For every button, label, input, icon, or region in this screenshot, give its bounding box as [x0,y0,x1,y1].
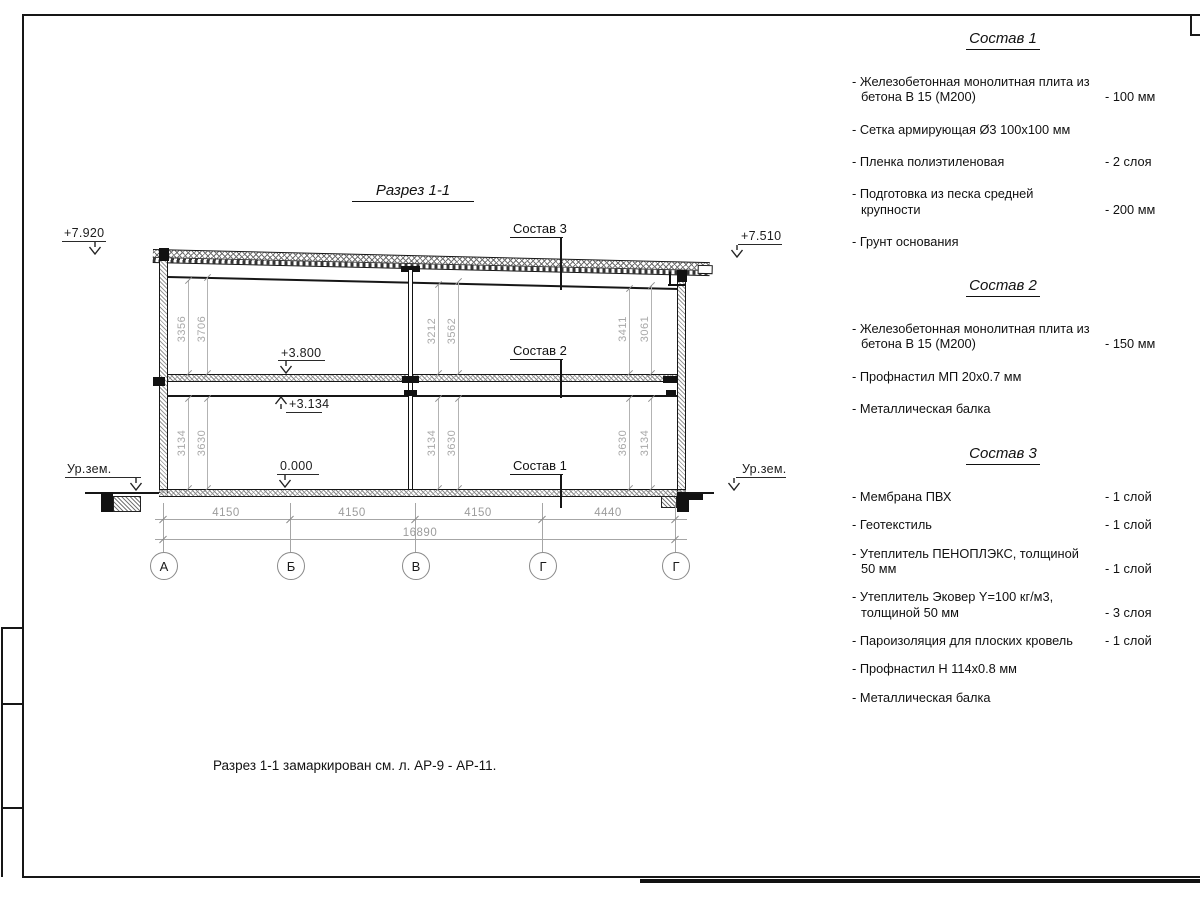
panel-item: - Железобетонная монолитная плита из бет… [852,321,1154,352]
item-value: - 1 слой [1105,517,1152,532]
item-label: - Мембрана ПВХ [852,489,1093,504]
floor-beam-right-support [666,390,676,396]
floor-slab [168,374,677,382]
panel-item: - Подготовка из песка средней крупности … [852,186,1154,217]
dim-line [629,398,630,489]
panel-item: - Железобетонная монолитная плита из бет… [852,74,1154,105]
dim-value: 4440 [578,507,638,519]
item-label: - Подготовка из песка средней крупности [852,186,1093,217]
dim-line [458,281,459,374]
panel-item: - Металлическая балка [852,401,1154,416]
item-value: - 200 мм [1105,202,1155,217]
leader-label-sostav3: Состав 3 [513,221,567,236]
elevation-arrow-icon [129,478,143,491]
dim-line [438,398,439,489]
right-foundation-stub [689,494,703,500]
panel-heading: Состав 1 [852,30,1154,47]
elevation-floor: +3.800 [281,346,321,360]
dim-value: 3411 [617,307,629,351]
roof-bracket-horizontal [668,284,686,286]
axis-bubble-g1: Г [529,552,557,580]
item-label: - Профнастил МП 20x0.7 мм [852,369,1093,384]
left-foundation-block [101,492,113,512]
dimension-line [155,539,687,540]
item-value: - 150 мм [1105,336,1155,351]
elevation-zero: 0.000 [280,459,313,473]
item-value: - 2 слоя [1105,154,1152,169]
item-label: - Металлическая балка [852,690,1093,705]
composition-panel-3: Состав 3 - Мембрана ПВХ - 1 слой - Геоте… [852,445,1154,718]
axis-extension-line [542,503,543,552]
axis-bubble-v: В [402,552,430,580]
leader-label-sostav2: Состав 2 [513,343,567,358]
elevation-arrow-up-icon [274,396,288,409]
elevation-roof-right: +7.510 [741,229,781,243]
left-wall [159,250,168,493]
leader-line [560,238,562,290]
ground-level-label-right: Ур.зем. [742,462,787,476]
frame-left-line [22,14,24,878]
elevation-arrow-icon [278,475,292,488]
item-value: - 1 слой [1105,489,1152,504]
item-value: - 1 слой [1105,633,1152,648]
leader-line [510,237,563,238]
title-block-top-bar [640,879,1200,883]
dim-value: 4150 [196,507,256,519]
ground-line-left [85,492,159,494]
leader-line [510,359,563,360]
column-floor-joint [404,390,417,396]
dim-line [629,288,630,374]
item-value: - 3 слоя [1105,605,1152,620]
ground-level-label-left: Ур.зем. [67,462,112,476]
dim-value: 3061 [639,307,651,351]
axis-extension-line [675,503,676,552]
leader-line [510,474,563,475]
axis-bubble-a: А [150,552,178,580]
dim-value: 3356 [176,307,188,351]
right-wall [677,272,686,493]
margin-box-line [1,627,3,877]
floor-beam-left-support [153,377,165,386]
frame-bottom-line [22,876,1200,878]
axis-extension-line [290,503,291,552]
panel-item: - Утеплитель ПЕНОПЛЭКС, толщиной 50 мм -… [852,546,1154,577]
dim-value: 3134 [639,421,651,465]
dim-value: 3630 [196,421,208,465]
right-foundation-block [677,492,689,512]
panel-item: - Утеплитель Эковер Y=100 кг/м3, толщино… [852,589,1154,620]
right-wall-cap [677,270,687,282]
panel-heading: Состав 2 [852,277,1154,294]
elevation-underline [736,477,786,478]
axis-extension-line [163,503,164,552]
item-label: - Утеплитель Эковер Y=100 кг/м3, толщино… [852,589,1093,620]
panel-item: - Пароизоляция для плоских кровель - 1 с… [852,633,1154,648]
axis-bubble-b: Б [277,552,305,580]
dim-value: 3706 [196,307,208,351]
panel-item: - Пленка полиэтиленовая - 2 слоя [852,154,1154,169]
roof-slab [153,249,710,276]
item-label: - Грунт основания [852,234,1093,249]
item-label: - Железобетонная монолитная плита из бет… [852,321,1093,352]
dim-value: 3134 [176,421,188,465]
floor-beam-line [168,395,677,397]
section-title: Разрез 1-1 [352,182,474,202]
dim-line [651,285,652,374]
elevation-arrow-icon [88,242,102,255]
drawing-sheet: Разрез 1-1 Состав 3 Состав 2 Состав 1 +7… [0,0,1200,900]
leader-line [560,475,562,508]
elevation-underline [738,244,782,245]
composition-panel-2: Состав 2 - Железобетонная монолитная пли… [852,277,1154,433]
dim-value: 4150 [322,507,382,519]
composition-panel-1: Состав 1 - Железобетонная монолитная пли… [852,30,1154,266]
frame-top-line [22,14,1200,16]
panel-item: - Профнастил Н 114x0.8 мм [852,661,1154,676]
dimension-line [155,519,687,520]
leader-label-sostav1: Состав 1 [513,458,567,473]
dim-line [188,398,189,489]
margin-box-line [1,627,22,629]
elevation-roof-left: +7.920 [64,226,104,240]
item-value: - 1 слой [1105,561,1152,576]
elevation-arrow-icon [727,478,741,491]
panel-item: - Сетка армирующая Ø3 100x100 мм [852,122,1154,137]
elevation-underline [286,412,322,413]
frame-corner-box [1190,16,1200,36]
dim-line [458,398,459,489]
elevation-arrow-icon [279,361,293,374]
panel-item: - Профнастил МП 20x0.7 мм [852,369,1154,384]
panel-item: - Металлическая балка [852,690,1154,705]
item-label: - Утеплитель ПЕНОПЛЭКС, толщиной 50 мм [852,546,1093,577]
item-label: - Пароизоляция для плоских кровель [852,633,1093,648]
item-label: - Железобетонная монолитная плита из бет… [852,74,1093,105]
roof-beam-line [168,276,679,290]
dim-value: 3562 [446,309,458,353]
dim-line [188,280,189,374]
elevation-beam: +3.134 [289,397,329,411]
panel-item: - Грунт основания [852,234,1154,249]
item-label: - Пленка полиэтиленовая [852,154,1093,169]
left-foundation-hatch [113,496,141,512]
margin-box-line [1,807,22,809]
panel-heading: Состав 3 [852,445,1154,462]
dim-line [438,284,439,374]
ground-slab [159,489,686,497]
item-label: - Геотекстиль [852,517,1093,532]
margin-box-line [1,703,22,705]
dim-line [651,398,652,489]
elevation-arrow-icon [730,245,744,258]
item-label: - Профнастил Н 114x0.8 мм [852,661,1093,676]
panel-item: - Мембрана ПВХ - 1 слой [852,489,1154,504]
left-wall-cap [159,248,169,261]
item-label: - Металлическая балка [852,401,1093,416]
dim-total-value: 16890 [390,527,450,539]
leader-line [560,360,562,398]
dim-value: 3212 [426,309,438,353]
item-value: - 100 мм [1105,89,1155,104]
dim-value: 3630 [446,421,458,465]
axis-bubble-g2: Г [662,552,690,580]
item-label: - Сетка армирующая Ø3 100x100 мм [852,122,1093,137]
dim-value: 3134 [426,421,438,465]
panel-item: - Геотекстиль - 1 слой [852,517,1154,532]
dim-value: 4150 [448,507,508,519]
note-text: Разрез 1-1 замаркирован см. л. АР-9 - АР… [213,758,496,773]
floor-beam-right-support [663,376,677,383]
column-floor-joint [402,376,419,383]
dim-value: 3630 [617,421,629,465]
roof-edge-cap [698,265,713,274]
